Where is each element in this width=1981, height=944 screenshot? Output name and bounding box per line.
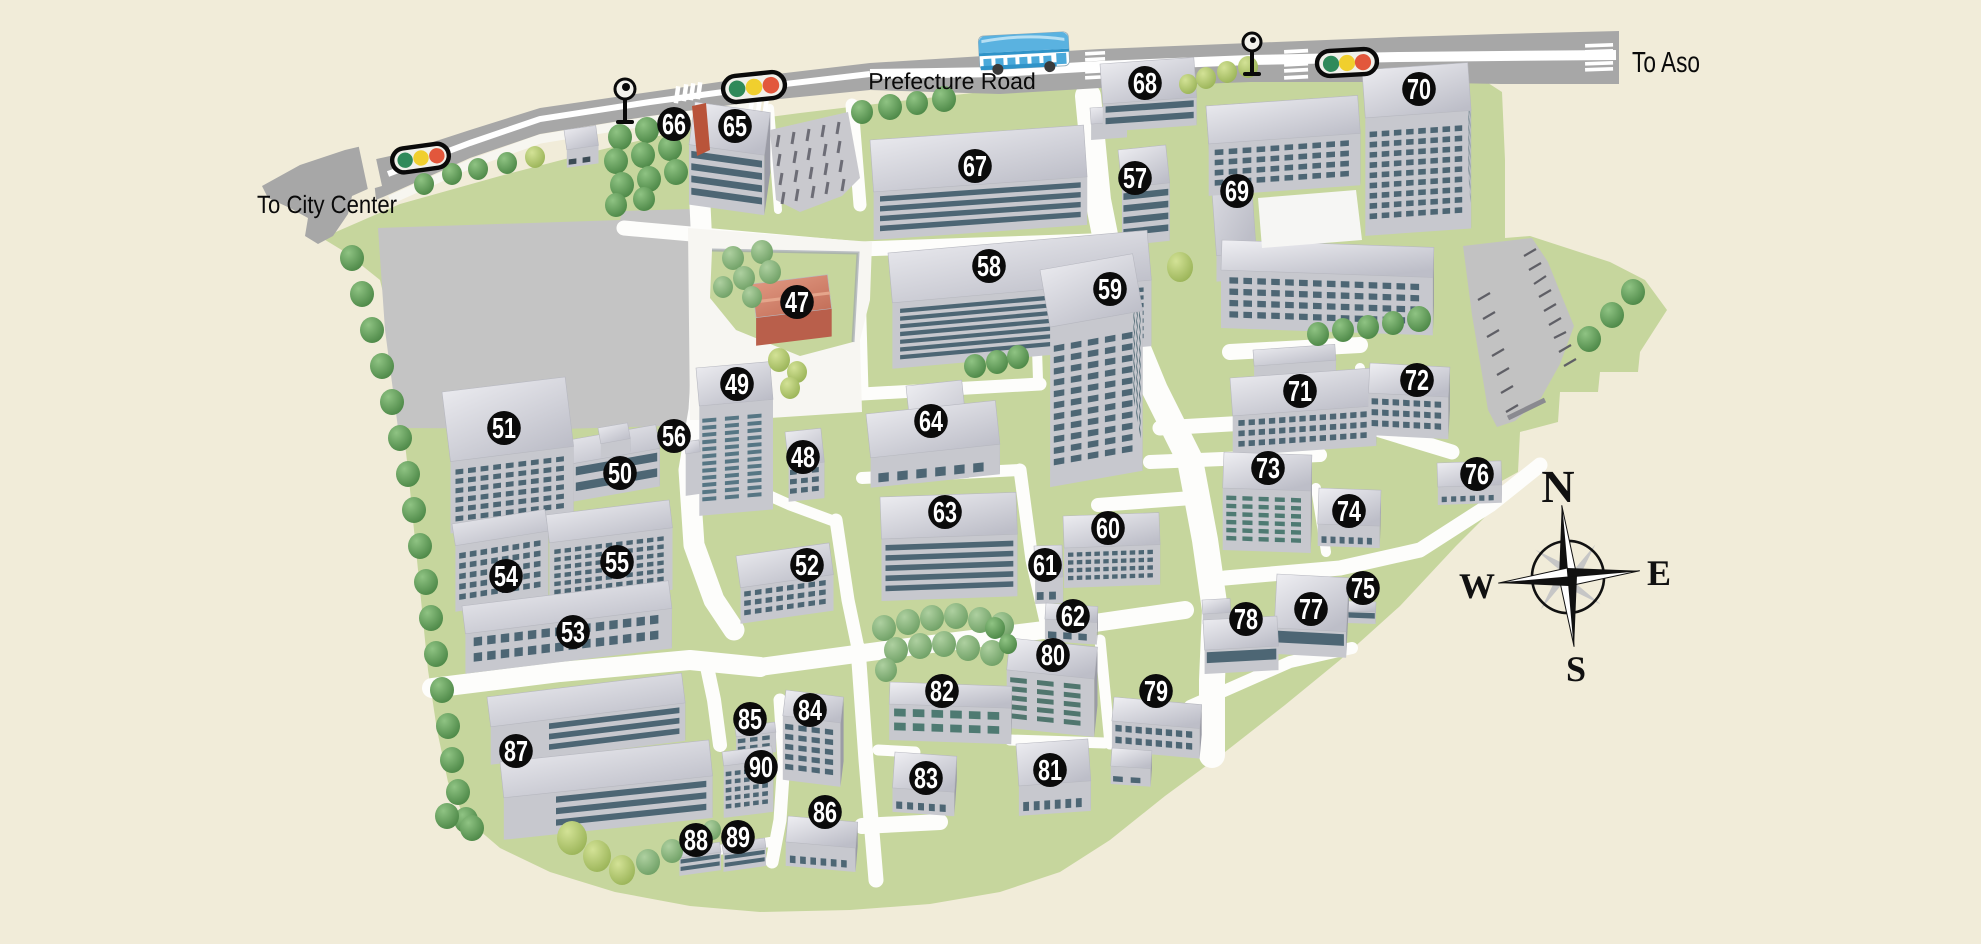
svg-text:70: 70	[1407, 74, 1431, 106]
svg-text:90: 90	[749, 752, 773, 784]
svg-text:88: 88	[684, 825, 708, 857]
svg-text:W: W	[1459, 566, 1495, 606]
svg-text:S: S	[1566, 649, 1586, 689]
svg-text:74: 74	[1337, 496, 1361, 528]
svg-text:57: 57	[1123, 163, 1147, 195]
svg-text:To Aso: To Aso	[1632, 47, 1700, 79]
svg-text:71: 71	[1288, 376, 1312, 408]
svg-text:48: 48	[791, 442, 815, 474]
svg-text:86: 86	[813, 797, 837, 829]
svg-text:73: 73	[1256, 453, 1280, 485]
svg-text:72: 72	[1405, 365, 1429, 397]
svg-text:77: 77	[1299, 594, 1323, 626]
svg-text:55: 55	[605, 547, 629, 579]
svg-text:79: 79	[1144, 676, 1168, 708]
svg-text:68: 68	[1133, 68, 1157, 100]
svg-text:82: 82	[930, 676, 954, 708]
svg-text:56: 56	[662, 421, 686, 453]
svg-text:83: 83	[914, 763, 938, 795]
svg-text:60: 60	[1096, 513, 1120, 545]
svg-text:64: 64	[919, 406, 943, 438]
svg-text:59: 59	[1098, 274, 1122, 306]
svg-text:80: 80	[1041, 640, 1065, 672]
svg-text:66: 66	[662, 109, 686, 141]
svg-text:65: 65	[723, 111, 747, 143]
svg-text:E: E	[1647, 553, 1671, 593]
svg-text:53: 53	[561, 617, 585, 649]
svg-text:N: N	[1541, 461, 1574, 512]
svg-text:87: 87	[504, 736, 528, 768]
svg-text:75: 75	[1351, 573, 1375, 605]
svg-text:To City Center: To City Center	[257, 191, 397, 219]
svg-text:85: 85	[738, 704, 762, 736]
svg-text:58: 58	[977, 251, 1001, 283]
svg-text:78: 78	[1234, 604, 1258, 636]
svg-text:76: 76	[1465, 459, 1489, 491]
svg-text:47: 47	[785, 287, 809, 319]
svg-text:51: 51	[492, 413, 516, 445]
svg-text:54: 54	[494, 561, 518, 593]
svg-text:69: 69	[1225, 176, 1249, 208]
svg-text:61: 61	[1033, 550, 1057, 582]
svg-text:Prefecture Road: Prefecture Road	[868, 68, 1035, 94]
svg-text:84: 84	[798, 695, 822, 727]
svg-text:67: 67	[963, 151, 987, 183]
svg-text:89: 89	[726, 822, 750, 854]
svg-text:63: 63	[933, 497, 957, 529]
svg-text:49: 49	[725, 369, 749, 401]
svg-text:62: 62	[1061, 601, 1085, 633]
svg-text:50: 50	[608, 458, 632, 490]
svg-text:81: 81	[1038, 755, 1062, 787]
svg-text:52: 52	[795, 550, 819, 582]
